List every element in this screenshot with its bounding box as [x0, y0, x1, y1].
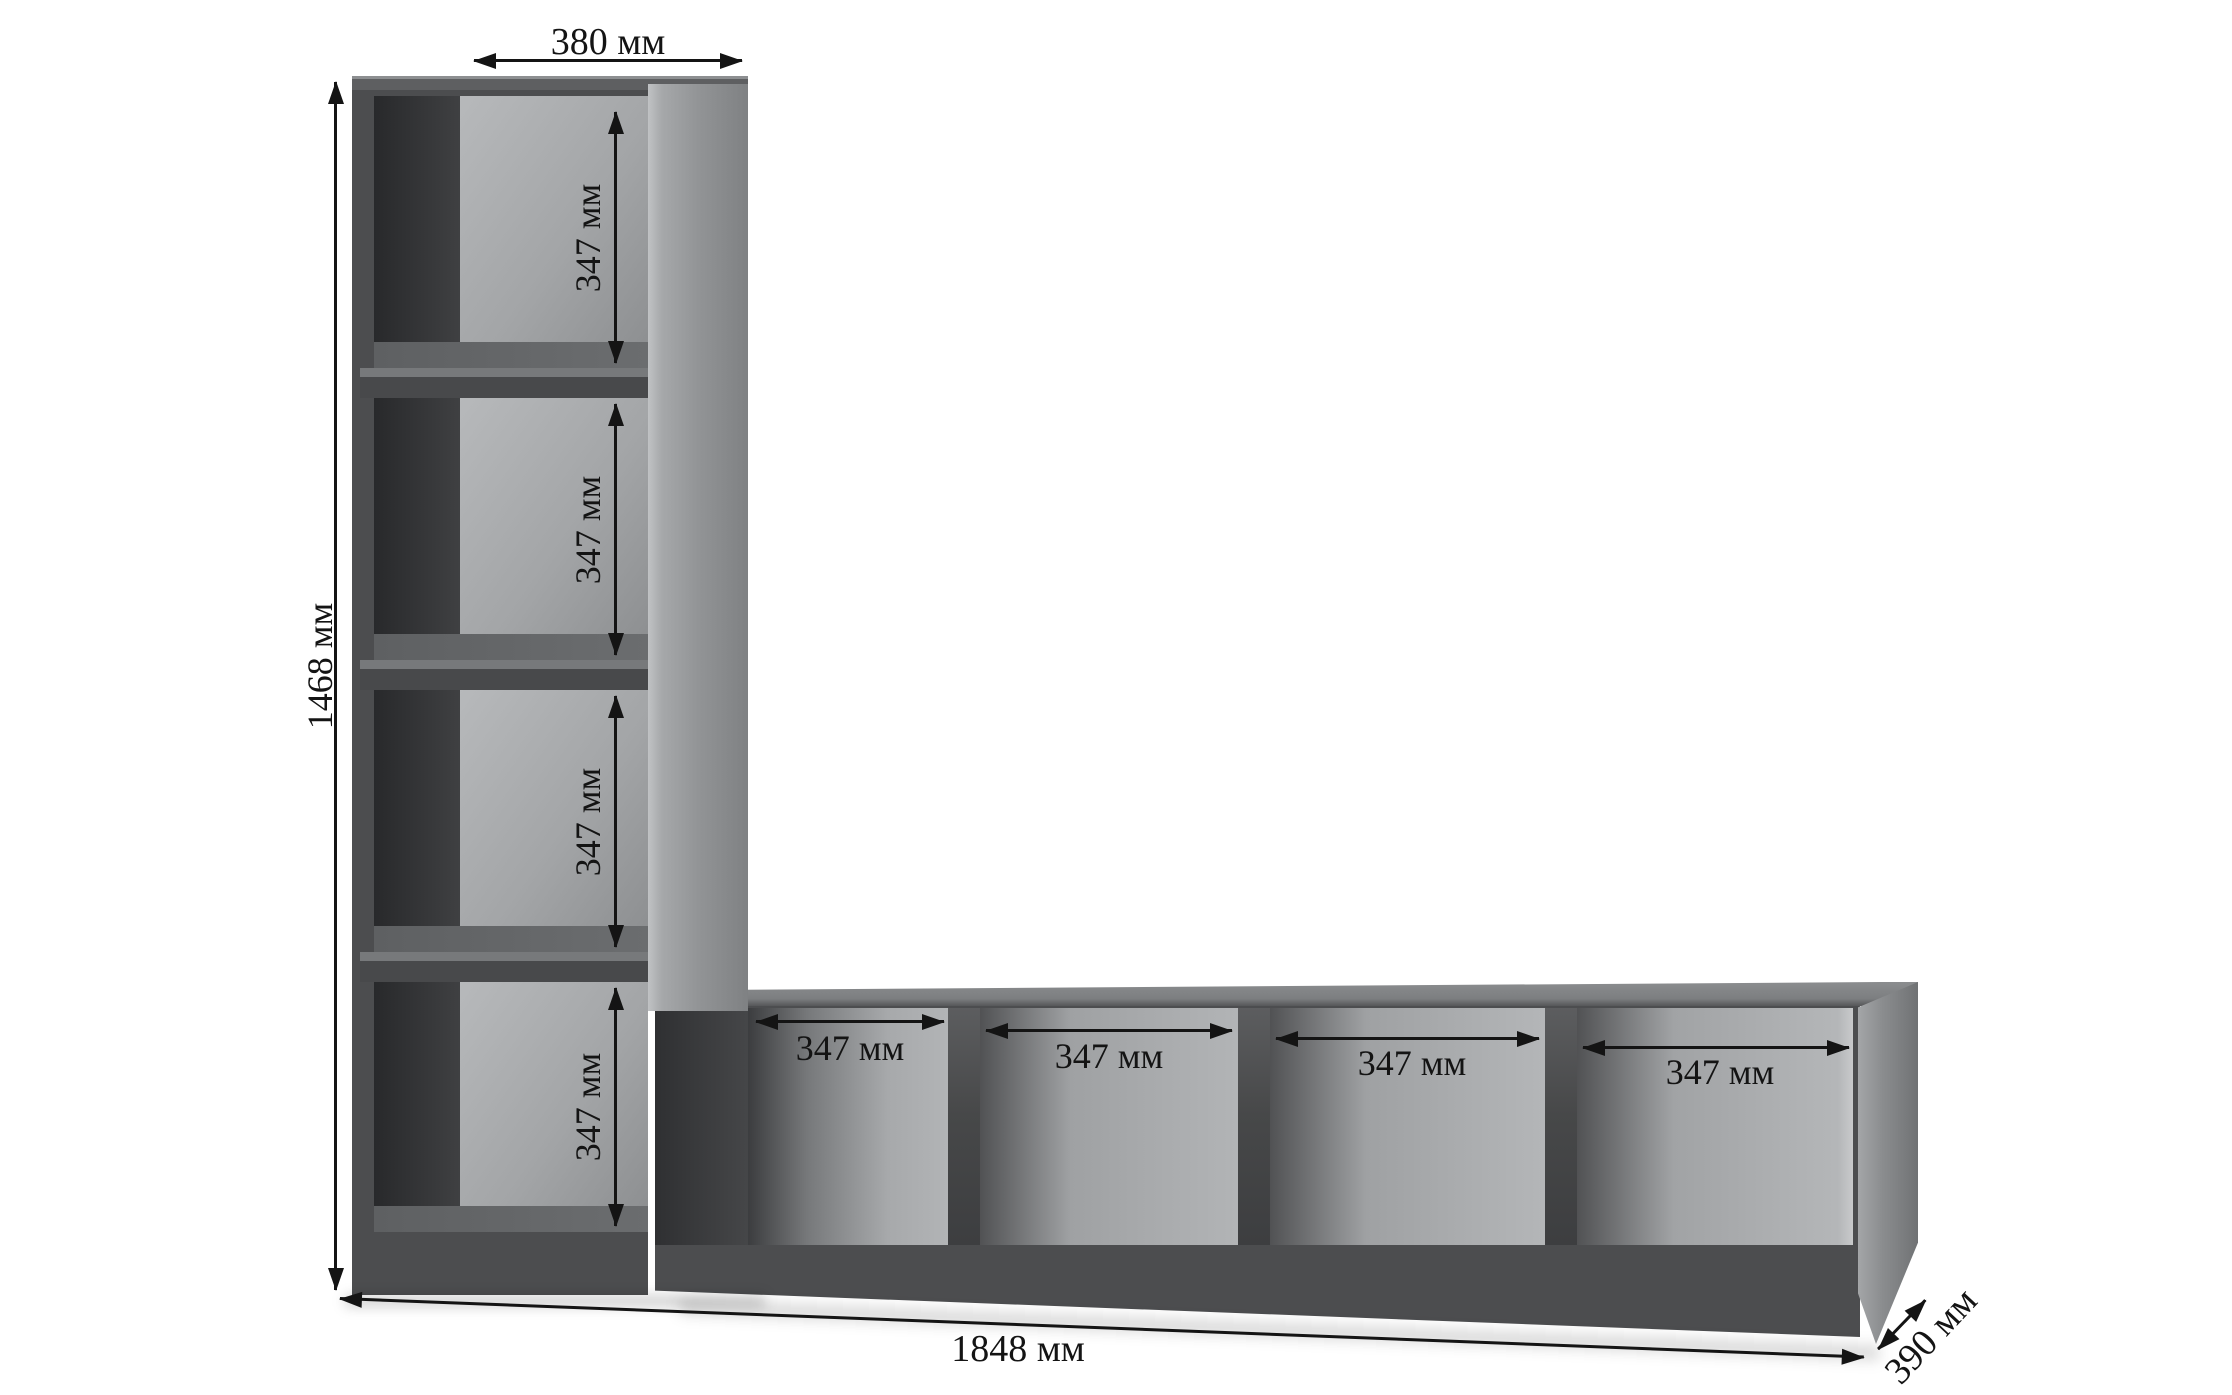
column-cell-back-panel	[460, 96, 648, 368]
shelf-divider	[360, 368, 648, 398]
row-divider	[1238, 1008, 1270, 1245]
column-cell-shadow-wall	[374, 982, 460, 1232]
row-top-face	[655, 982, 1918, 1006]
dim-row-cell-2-arrow	[986, 1029, 1232, 1032]
dim-total-length-label: 1848 мм	[951, 1327, 1085, 1371]
dim-row-cell-3-label: 347 мм	[1358, 1042, 1467, 1084]
row-right-side-panel	[1858, 982, 1918, 1344]
dim-total-height-arrow	[334, 82, 337, 1290]
dim-top-width-label: 380 мм	[551, 20, 666, 64]
dim-column-cell-2-label: 347 мм	[567, 476, 609, 585]
column-cell-back-panel	[460, 982, 648, 1232]
dim-column-cell-3-label: 347 мм	[567, 768, 609, 877]
dim-top-width-arrow	[474, 59, 742, 62]
dim-column-cell-4-label: 347 мм	[567, 1053, 609, 1162]
dim-column-cell-2-arrow	[614, 404, 617, 655]
dim-row-cell-2-label: 347 мм	[1055, 1035, 1164, 1077]
column-cell-back-panel	[460, 690, 648, 952]
dim-row-cell-4-label: 347 мм	[1666, 1051, 1775, 1093]
dim-row-cell-1-arrow	[756, 1020, 944, 1023]
dim-column-cell-1-arrow	[614, 112, 617, 363]
row-left-wall-shadow	[655, 1008, 755, 1245]
column-cell-back-panel	[460, 398, 648, 660]
column-cell-shadow-wall	[374, 96, 460, 368]
shelf-divider	[360, 952, 648, 982]
row-divider	[1545, 1008, 1577, 1245]
dim-row-cell-1-label: 347 мм	[796, 1027, 905, 1069]
diagram-canvas: 380 мм 1468 мм 347 мм 347 мм 347 мм 347 …	[0, 0, 2232, 1395]
row-divider	[948, 1008, 980, 1245]
dim-row-cell-3-arrow	[1276, 1037, 1539, 1040]
column-cell-shadow-wall	[374, 398, 460, 660]
dim-column-cell-3-arrow	[614, 696, 617, 947]
dim-column-cell-4-arrow	[614, 988, 617, 1226]
dim-column-cell-1-label: 347 мм	[567, 184, 609, 293]
shelf-divider	[360, 660, 648, 690]
dim-row-cell-4-arrow	[1583, 1046, 1849, 1049]
column-cell-shadow-wall	[374, 690, 460, 952]
column-side-panel	[648, 84, 748, 1011]
row-cell-back-panel	[1577, 1008, 1853, 1245]
